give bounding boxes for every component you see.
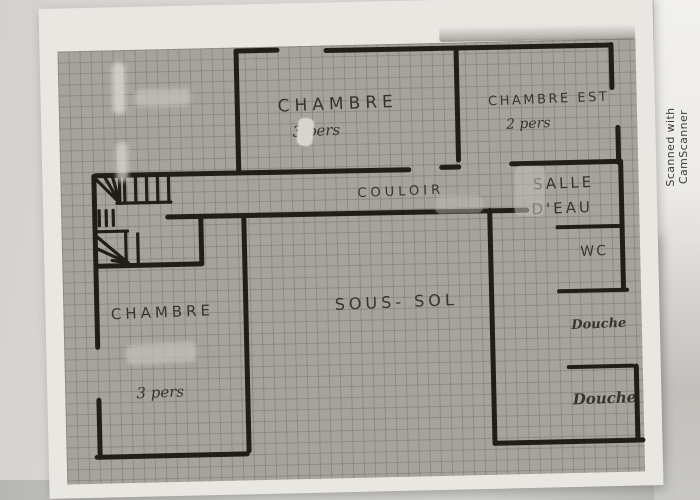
scanned-floorplan-photo: CHAMBRE 3 pers CHAMBRE EST 2 pers COULOI… [0, 0, 700, 500]
wall-right-upper [608, 42, 614, 90]
wall-stairwell-right [198, 214, 204, 266]
wall-top-main [323, 42, 613, 53]
tape-patch-salle-eau [514, 166, 545, 216]
room-label-sous-sol: SOUS- SOL [334, 290, 458, 314]
wall-salle-eau-bottom [556, 224, 623, 230]
tape-patch-couloir [435, 195, 483, 214]
room-label-douche-haut: Douche [571, 316, 627, 333]
wall-douche-divider [567, 364, 635, 370]
erased-pencil-smudge [126, 341, 197, 365]
wall-right-mid [618, 159, 626, 292]
smudge-top [134, 89, 190, 107]
staircase-drawing [88, 169, 180, 271]
correction-streak-left-1 [112, 62, 126, 114]
correction-fluid-blob [296, 117, 314, 146]
room-label-chambre-est: CHAMBRE EST [488, 90, 610, 110]
floor-plan: CHAMBRE 3 pers CHAMBRE EST 2 pers COULOI… [55, 19, 645, 487]
wall-top-left-segment [235, 48, 279, 54]
room-capacity-chambre-ouest: 3 pers [136, 382, 184, 402]
room-label-chambre-nord: CHAMBRE [277, 92, 398, 117]
wall-sous-sol-left [241, 213, 251, 453]
room-label-couloir: COULOIR [357, 183, 444, 201]
graph-paper-sheet: CHAMBRE 3 pers CHAMBRE EST 2 pers COULOI… [39, 0, 664, 499]
camscanner-watermark: Scanned with CamScanner [664, 72, 690, 222]
wall-bottom-right [492, 437, 645, 445]
wall-corridor-top-b [439, 164, 461, 169]
room-label-chambre-ouest: CHAMBRE [111, 301, 215, 323]
correction-streak-left-2 [116, 142, 129, 182]
wall-left-lower [96, 398, 102, 460]
room-label-wc: WC [580, 243, 608, 260]
room-label-douche-bas: Douche [572, 388, 636, 409]
wall-sous-sol-right [487, 208, 497, 446]
wall-bottom-left [95, 451, 250, 460]
room-capacity-chambre-est: 2 pers [506, 115, 551, 133]
wall-wc-bottom [557, 288, 629, 294]
wall-upper-bedroom-left [233, 49, 241, 175]
wall-bedroom-divider [454, 49, 462, 163]
